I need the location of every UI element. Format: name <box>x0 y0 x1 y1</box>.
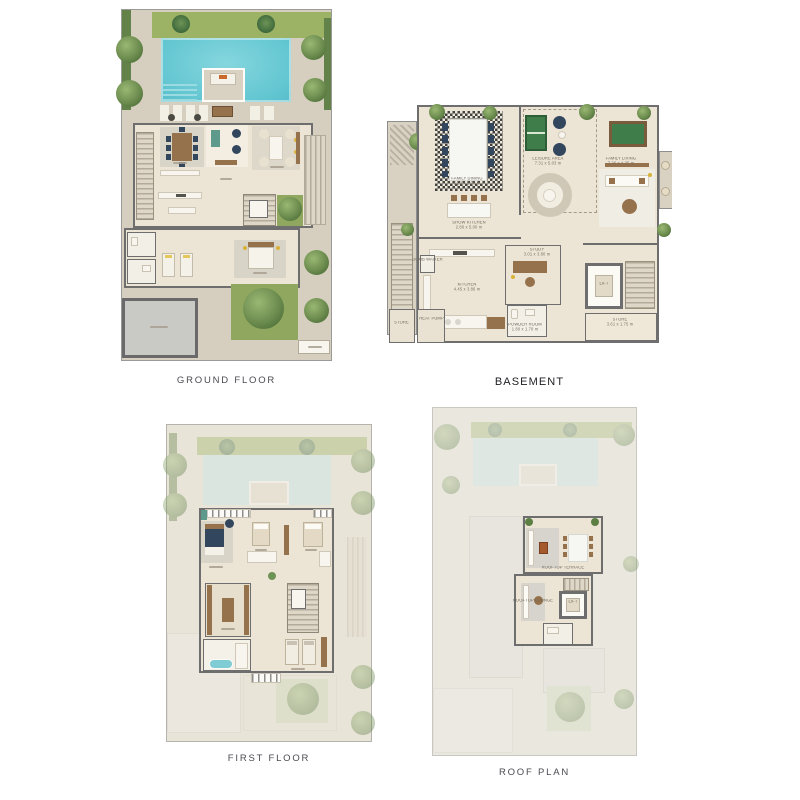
desk-lamp <box>511 275 515 279</box>
potted-plant <box>591 518 599 526</box>
round-side-table <box>168 114 175 121</box>
room-label-family-dining: FAMILY DINING5.20 x 5.00 m <box>447 177 488 186</box>
floor-plan-basement: FAMILY DINING5.20 x 5.00 m SHOW KITCHEN2… <box>387 103 672 360</box>
sofa-cushion <box>609 178 615 184</box>
first-floor-title: FIRST FLOOR <box>166 753 372 764</box>
floor-plan-ground <box>121 9 332 361</box>
basement-staircase <box>625 261 655 309</box>
outdoor-seating-terrace <box>659 151 672 209</box>
illegible-room-label <box>221 628 235 630</box>
show-kitchen-island <box>447 203 491 218</box>
illegible-room-label <box>291 668 305 670</box>
bedside-lamp <box>243 246 247 250</box>
fire-table <box>539 542 548 554</box>
side-table <box>558 131 566 139</box>
pillow-accent <box>219 75 227 79</box>
floor-plan-roof: ROOFTOP TERRACE ROOFTOP LOUNGE LIFT <box>432 407 637 756</box>
dining-chair <box>179 127 185 132</box>
tree <box>304 298 329 323</box>
bathtub <box>209 659 233 669</box>
show-kitchen-stools <box>451 195 489 201</box>
side-staircase <box>136 132 154 220</box>
illegible-room-label <box>220 178 232 180</box>
sink <box>455 319 461 325</box>
lift <box>249 200 268 218</box>
bed-sheet <box>205 547 224 555</box>
planter <box>268 572 276 580</box>
fixture <box>131 237 138 246</box>
room-label-kitchen: KITCHEN4.45 x 3.86 m <box>447 283 488 292</box>
sideboard <box>487 317 505 329</box>
tree <box>116 80 143 107</box>
kitchen-counter <box>160 170 200 176</box>
planter <box>201 510 207 520</box>
fixture <box>142 265 151 272</box>
pool-steps <box>163 84 197 101</box>
dining-chairs <box>488 123 494 177</box>
tree <box>657 223 671 237</box>
planter <box>211 130 220 147</box>
dining-table <box>172 133 192 161</box>
store-room-small <box>389 309 415 343</box>
illegible-room-label <box>270 166 284 168</box>
cooktop <box>176 194 186 197</box>
bathroom-fixtures <box>247 551 277 563</box>
roof-staircase <box>563 578 589 591</box>
illegible-room-label <box>150 326 168 328</box>
armchair <box>285 157 295 167</box>
dining-chairs <box>166 136 171 160</box>
console-table <box>284 525 289 555</box>
bed-pillows <box>304 641 314 645</box>
room-label-roof-lift: LIFT <box>553 600 594 605</box>
illegible-room-label <box>305 549 317 551</box>
dining-table <box>449 119 487 181</box>
floor-lamp <box>648 173 652 177</box>
illegible-room-label <box>173 162 187 164</box>
wardrobe-island <box>222 598 234 622</box>
room-label-family-living: FAMILY LIVING7.26 x 4.35 m <box>601 157 642 166</box>
outdoor-sofa <box>528 530 534 566</box>
sofa-cushion <box>639 178 645 184</box>
potted-plant <box>525 518 533 526</box>
tree <box>303 78 327 102</box>
rooftop-dining-table <box>568 534 588 562</box>
room-label-show-kitchen: SHOW KITCHEN2.80 x 5.00 m <box>449 221 490 230</box>
coffee-table <box>269 136 283 160</box>
dining-chairs <box>193 136 198 160</box>
cooktop <box>453 251 467 255</box>
dining-chairs <box>589 536 593 560</box>
dining-chairs <box>442 123 448 177</box>
armchair <box>285 129 295 139</box>
bed-pillows <box>305 524 321 529</box>
double-bed <box>248 247 274 269</box>
round-table <box>543 189 556 202</box>
roof-plan-title: ROOF PLAN <box>432 767 637 778</box>
entry-staircase <box>391 223 413 313</box>
sun-loungers <box>250 106 274 120</box>
study-desk <box>513 261 547 273</box>
foosball-midline <box>527 132 545 134</box>
tree <box>637 106 651 120</box>
tree <box>429 104 445 120</box>
room-label-heat-pump: HEAT PUMP <box>416 317 447 322</box>
basement-title: BASEMENT <box>387 376 672 388</box>
room-label-powder-room: POWDER ROOM1.80 x 1.70 m <box>505 323 546 332</box>
tree <box>301 35 326 60</box>
lift <box>291 589 306 609</box>
wall <box>417 237 521 239</box>
tree <box>401 223 414 236</box>
tree <box>579 104 595 120</box>
bed-pillows <box>254 524 268 529</box>
round-side-table <box>194 114 201 121</box>
wall <box>519 105 521 215</box>
wardrobe-unit <box>244 585 249 635</box>
bedside-lamp <box>276 246 280 250</box>
lounge-chair <box>553 116 566 129</box>
coffee-table <box>622 199 637 214</box>
armchair <box>259 129 269 139</box>
side-path-steps <box>304 135 326 225</box>
room-label-store-small: STORE <box>386 321 417 326</box>
pillow-accent <box>165 255 172 258</box>
room-label-study: STUDY3.01 x 3.80 m <box>517 248 558 257</box>
room-label-leisure-area: LEISURE AREA7.31 x 5.03 m <box>528 157 569 166</box>
room-label-store: STORE3.61 x 1.75 m <box>600 318 641 327</box>
tree <box>243 288 284 329</box>
wardrobe-unit <box>207 585 212 635</box>
palm-tree <box>257 15 275 33</box>
room-label-rooftop-terrace: ROOFTOP TERRACE <box>542 566 583 571</box>
lounge-chair <box>232 145 241 154</box>
ground-floor-title: GROUND FLOOR <box>121 375 332 386</box>
room-label-dumb-waiter: DUMB WAITER <box>412 258 443 263</box>
garage <box>122 298 198 358</box>
sink <box>525 309 535 316</box>
lounge-chair <box>553 143 566 156</box>
tree <box>116 36 143 63</box>
toilet <box>511 309 518 319</box>
heat-pump-room <box>417 309 445 343</box>
armchair <box>225 519 234 528</box>
room-label-lift: LIFT <box>584 282 625 287</box>
tree <box>304 250 329 275</box>
tree <box>483 106 497 120</box>
kitchen-island <box>168 207 196 214</box>
balcony <box>251 673 281 683</box>
lounge-chair <box>232 129 241 138</box>
illegible-room-label <box>308 346 322 348</box>
wall <box>583 243 659 245</box>
outdoor-dining-table <box>212 106 233 117</box>
wardrobe-unit <box>321 637 327 667</box>
room-label-rooftop-lounge: ROOFTOP LOUNGE <box>513 599 554 604</box>
balcony <box>313 509 332 518</box>
tree <box>278 197 302 221</box>
vanity-sinks <box>235 643 248 669</box>
bathroom-fixtures <box>547 627 559 634</box>
illegible-room-label <box>209 566 223 568</box>
desk-chair <box>525 277 535 287</box>
dining-chairs <box>563 536 567 560</box>
console-table <box>215 160 237 165</box>
balcony <box>205 509 251 518</box>
floor-plan-first <box>166 424 372 742</box>
bathroom-fixtures <box>319 551 331 567</box>
illegible-room-label <box>253 272 267 274</box>
bed-pillows <box>287 641 297 645</box>
outdoor-chair <box>661 161 670 170</box>
illegible-room-label <box>255 549 267 551</box>
pillow-accent <box>183 255 190 258</box>
palm-tree <box>172 15 190 33</box>
billiard-table <box>609 121 647 147</box>
outdoor-chair <box>661 187 670 196</box>
armchair <box>259 157 269 167</box>
media-console <box>296 132 300 164</box>
